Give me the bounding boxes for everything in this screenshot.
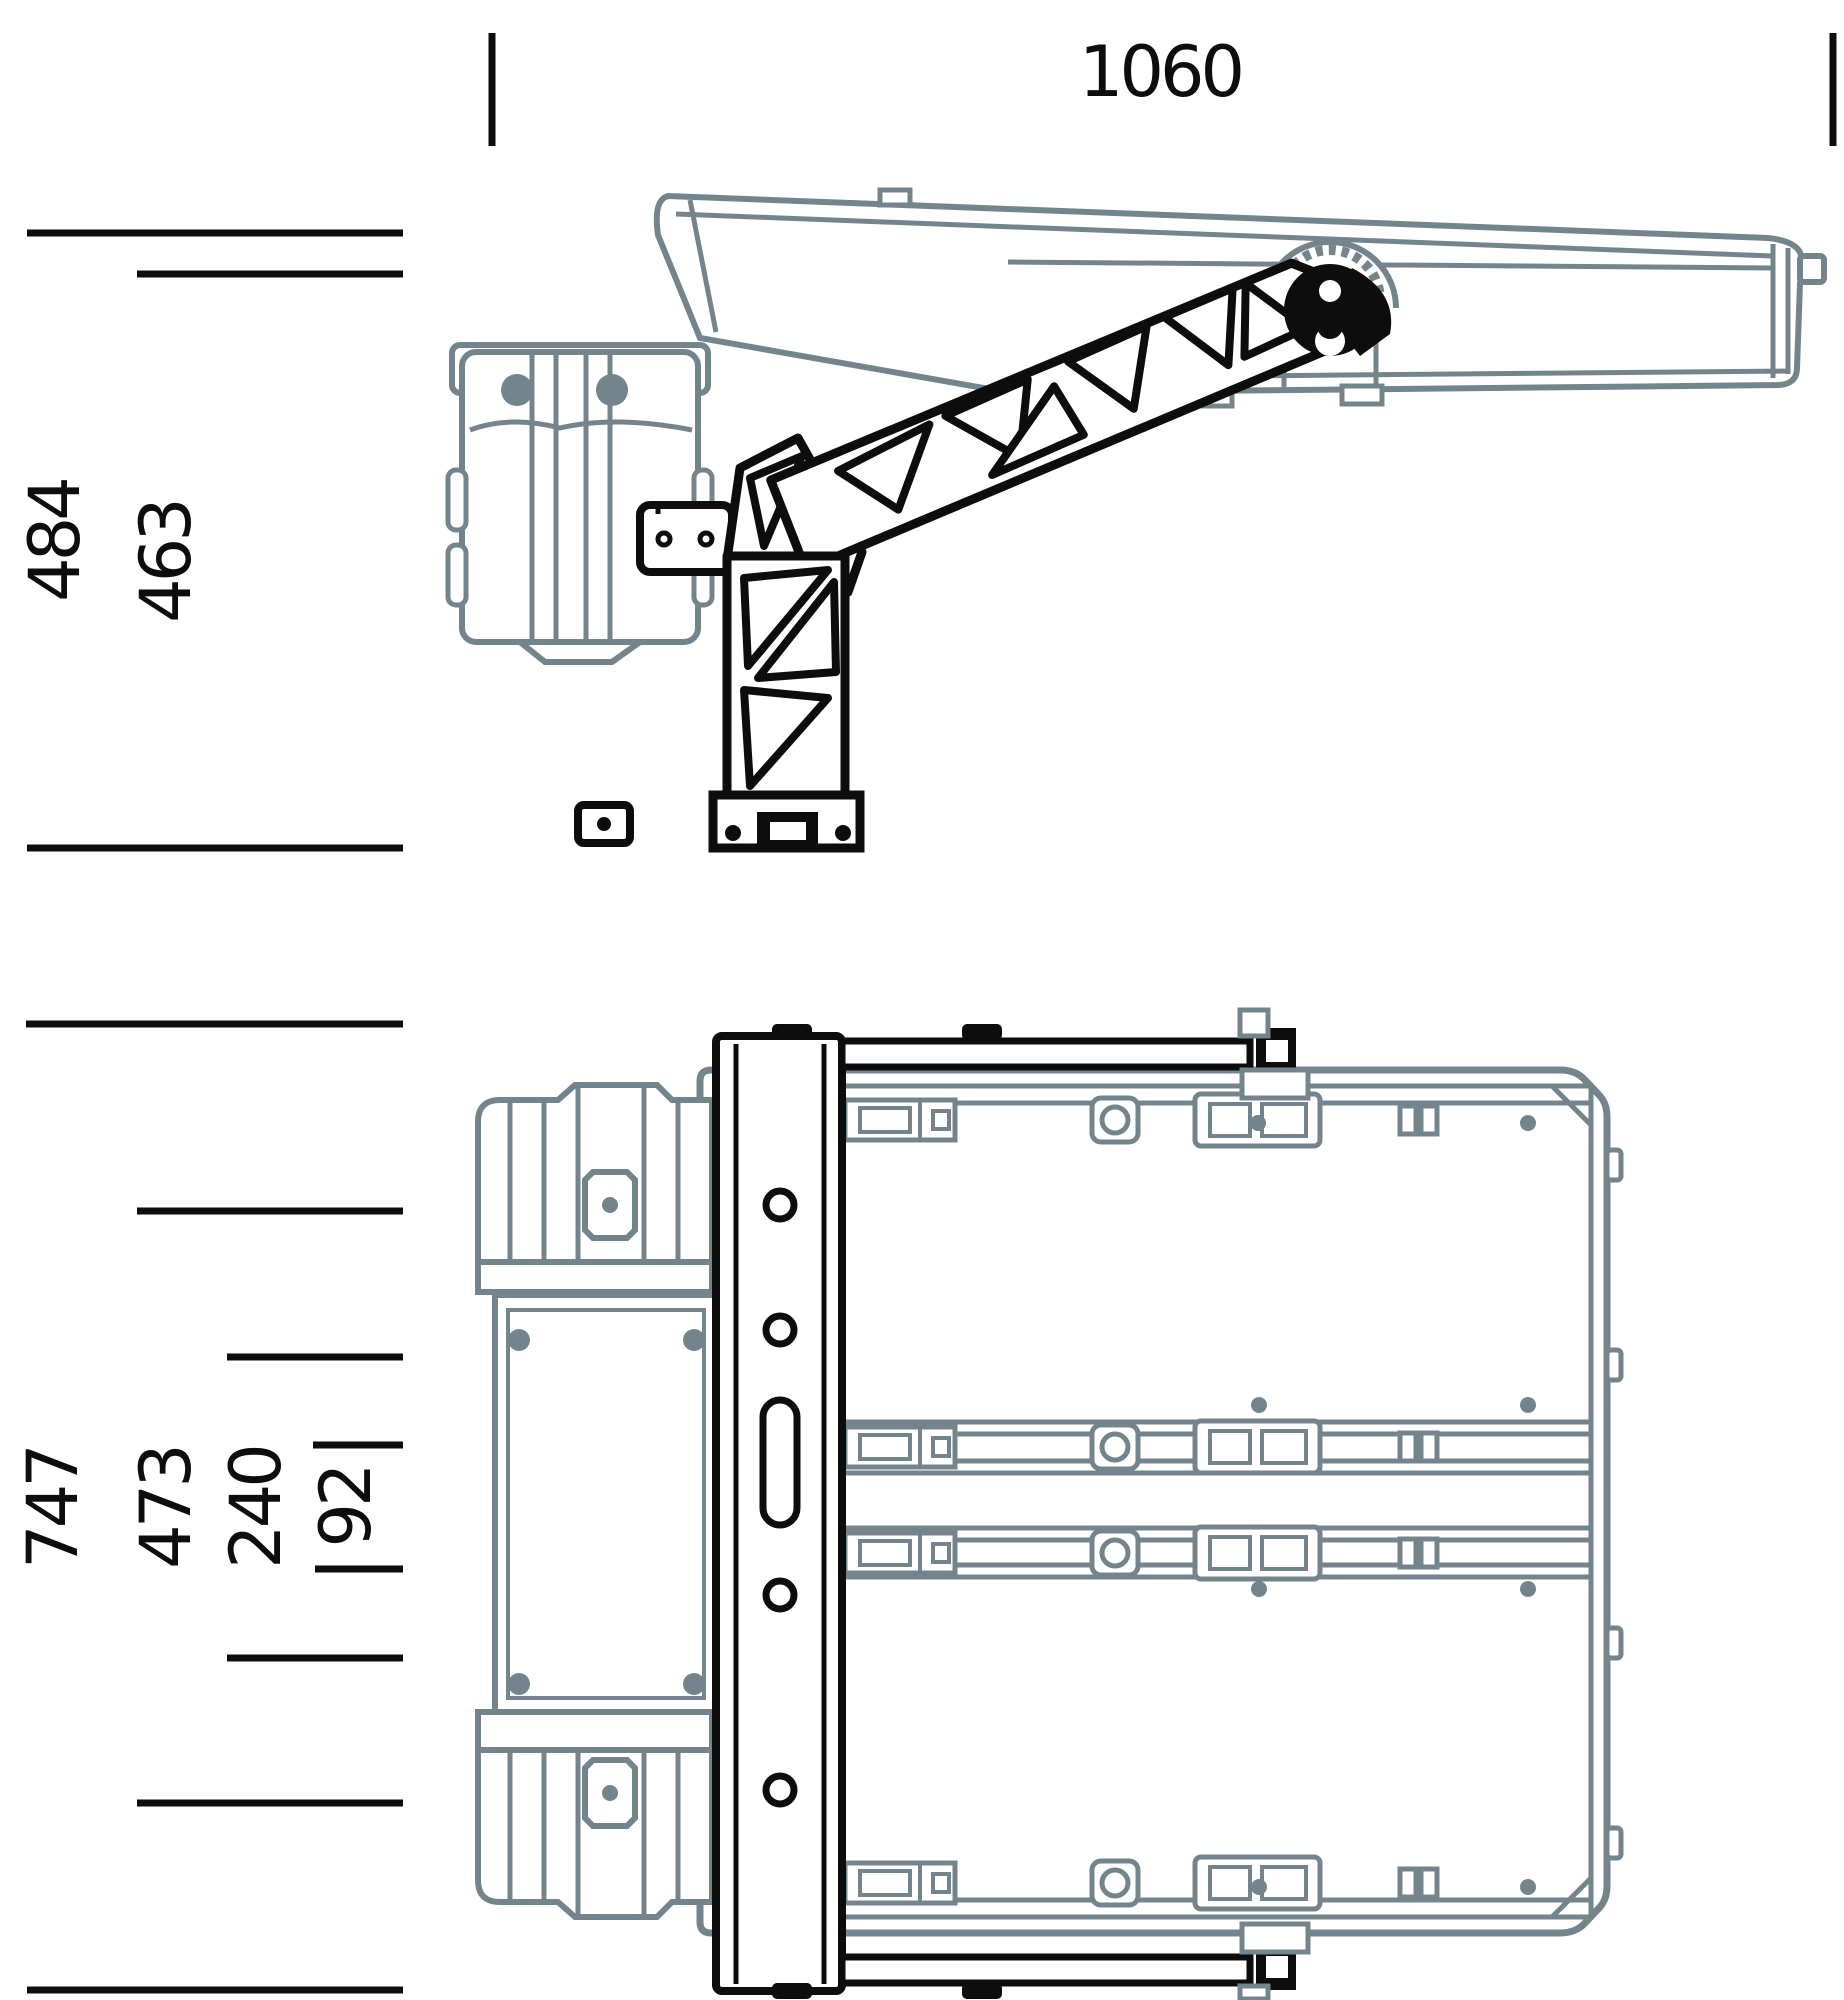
dimension-label-plan-473: 473 <box>125 1447 207 1569</box>
dimension-label-side-463: 463 <box>125 501 207 623</box>
arm-base <box>578 795 862 848</box>
dimension-label-plan-92: 92 <box>305 1466 387 1547</box>
panel-clip <box>880 190 910 205</box>
rail-hole <box>766 1191 794 1219</box>
drawing-canvas: 1060 484 463 747 473 240 92 <box>0 0 1844 2000</box>
rail-slot <box>763 1400 797 1525</box>
motor-bolt <box>596 374 628 406</box>
dimension-plan-heights: 747 473 240 92 <box>12 1024 403 1990</box>
dimension-label-width: 1060 <box>1079 31 1241 113</box>
arm-column <box>727 556 845 798</box>
actuator-housing <box>495 1295 717 1712</box>
plan-view <box>478 1010 1621 1999</box>
motor-assembly-plan-view <box>478 1085 717 1917</box>
technical-drawing: 1060 484 463 747 473 240 92 <box>0 0 1844 2000</box>
rail-hole <box>766 1776 794 1804</box>
rail-hole <box>766 1316 794 1344</box>
panel-end-latch <box>1800 256 1824 282</box>
mount-plate <box>640 505 732 572</box>
motor-bolt <box>501 374 533 406</box>
dimension-label-plan-240: 240 <box>215 1447 297 1569</box>
rail-hole <box>766 1581 794 1609</box>
dimension-label-side-484: 484 <box>14 480 96 602</box>
panel-clip <box>1342 386 1382 404</box>
dimension-width-1060: 1060 <box>492 31 1833 146</box>
dimension-side-heights: 484 463 <box>14 233 403 848</box>
dimension-label-plan-747: 747 <box>12 1447 94 1569</box>
side-view <box>448 190 1824 848</box>
